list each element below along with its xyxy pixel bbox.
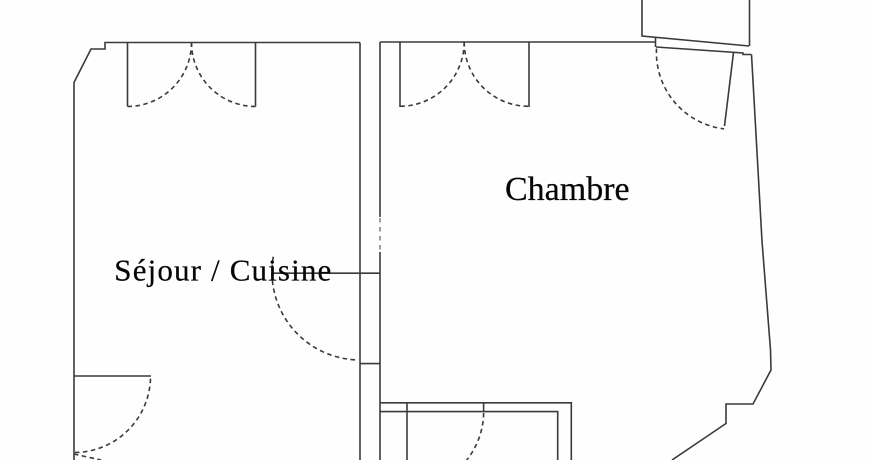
svg-text:Séjour / Cuisine: Séjour / Cuisine xyxy=(114,253,332,288)
svg-text:Chambre: Chambre xyxy=(505,171,630,208)
